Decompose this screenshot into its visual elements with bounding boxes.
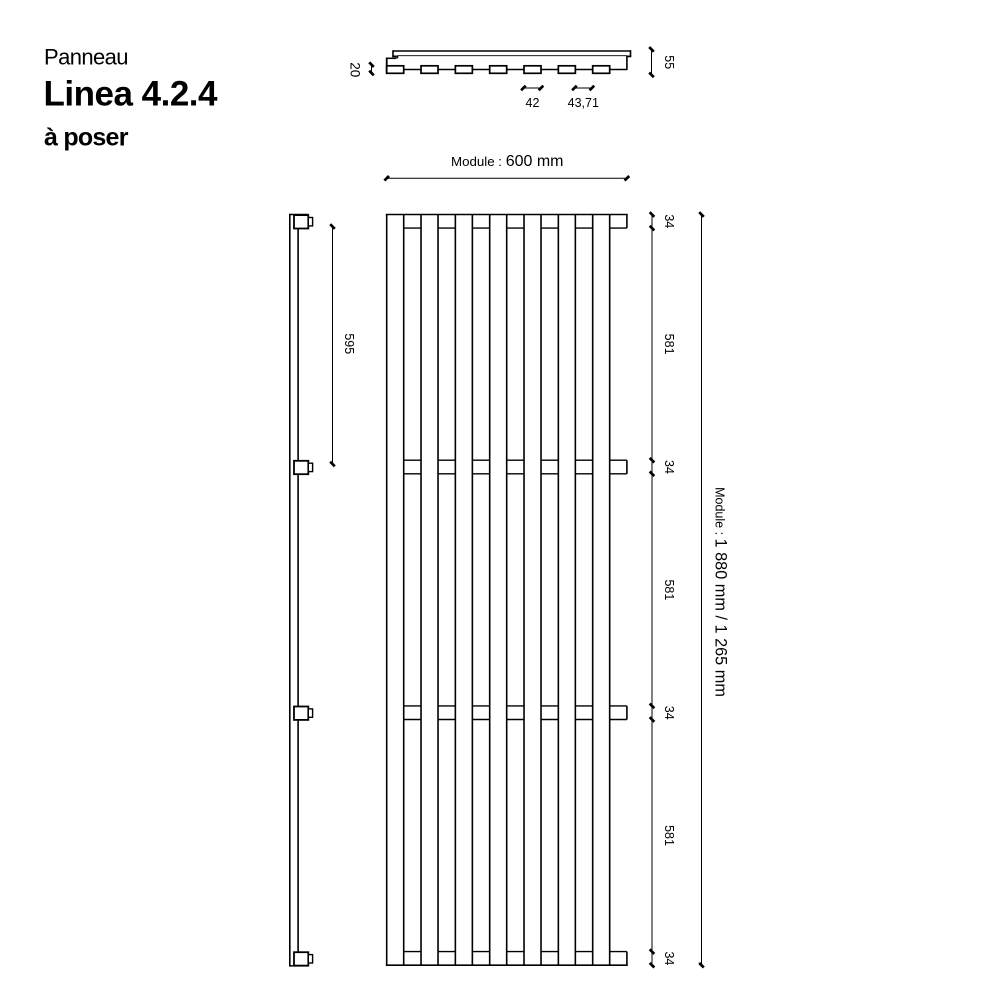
svg-text:20: 20 — [347, 62, 362, 77]
svg-text:581: 581 — [662, 579, 676, 600]
svg-text:43,71: 43,71 — [568, 96, 599, 110]
svg-text:Linea 4.2.4: Linea 4.2.4 — [44, 75, 219, 114]
svg-text:34: 34 — [662, 460, 676, 474]
svg-text:581: 581 — [662, 334, 676, 355]
svg-text:34: 34 — [662, 214, 676, 228]
svg-text:à poser: à poser — [44, 124, 129, 152]
svg-text:581: 581 — [662, 825, 676, 846]
svg-text:34: 34 — [662, 706, 676, 720]
svg-text:Panneau: Panneau — [44, 45, 128, 70]
svg-text:Module : 600 mm: Module : 600 mm — [451, 153, 564, 170]
svg-text:Module : 1 880 mm / 1 265 mm: Module : 1 880 mm / 1 265 mm — [711, 487, 729, 697]
svg-text:595: 595 — [342, 333, 356, 354]
svg-text:34: 34 — [662, 951, 676, 965]
svg-text:55: 55 — [662, 55, 676, 69]
svg-text:42: 42 — [526, 96, 540, 110]
